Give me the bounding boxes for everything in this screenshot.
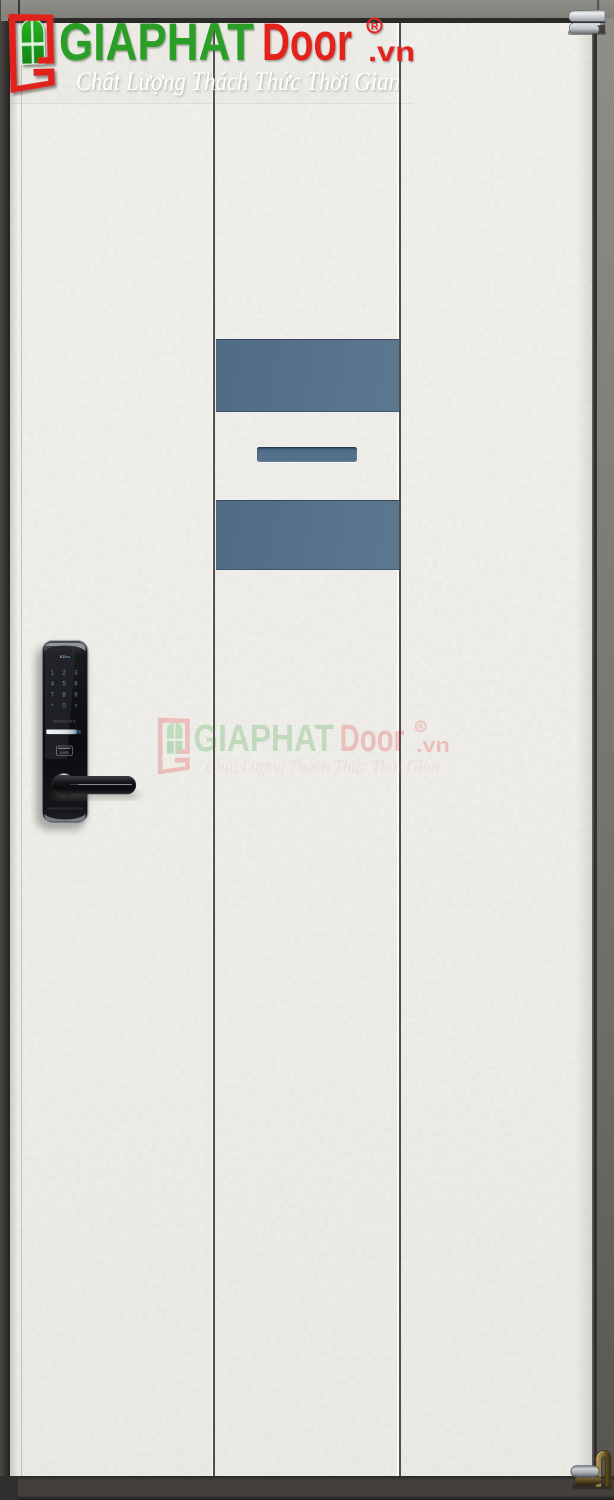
svg-text:Chất Lượng Thách Thức Thời Gia: Chất Lượng Thách Thức Thời Gian <box>206 756 439 777</box>
svg-text:GIAPHAT: GIAPHAT <box>194 718 334 760</box>
svg-text:CARD: CARD <box>60 751 70 755</box>
svg-text:GIAPHAT: GIAPHAT <box>59 13 254 72</box>
svg-text:R: R <box>418 722 424 731</box>
svg-text:SAMSUNG SHS-5120 XAK: SAMSUNG SHS-5120 XAK <box>47 807 83 810</box>
svg-text:Door: Door <box>262 13 352 72</box>
svg-text:Chất Lượng Thách Thức Thời Gia: Chất Lượng Thách Thức Thời Gian <box>76 67 400 96</box>
svg-text:Door: Door <box>340 718 405 760</box>
svg-text:.vn: .vn <box>416 734 450 756</box>
svg-text:EZon: EZon <box>60 655 71 659</box>
svg-text:.vn: .vn <box>368 36 415 67</box>
svg-text:R: R <box>371 20 379 32</box>
svg-text:SAMSUNG: SAMSUNG <box>53 719 76 723</box>
svg-text:#: # <box>75 703 78 709</box>
